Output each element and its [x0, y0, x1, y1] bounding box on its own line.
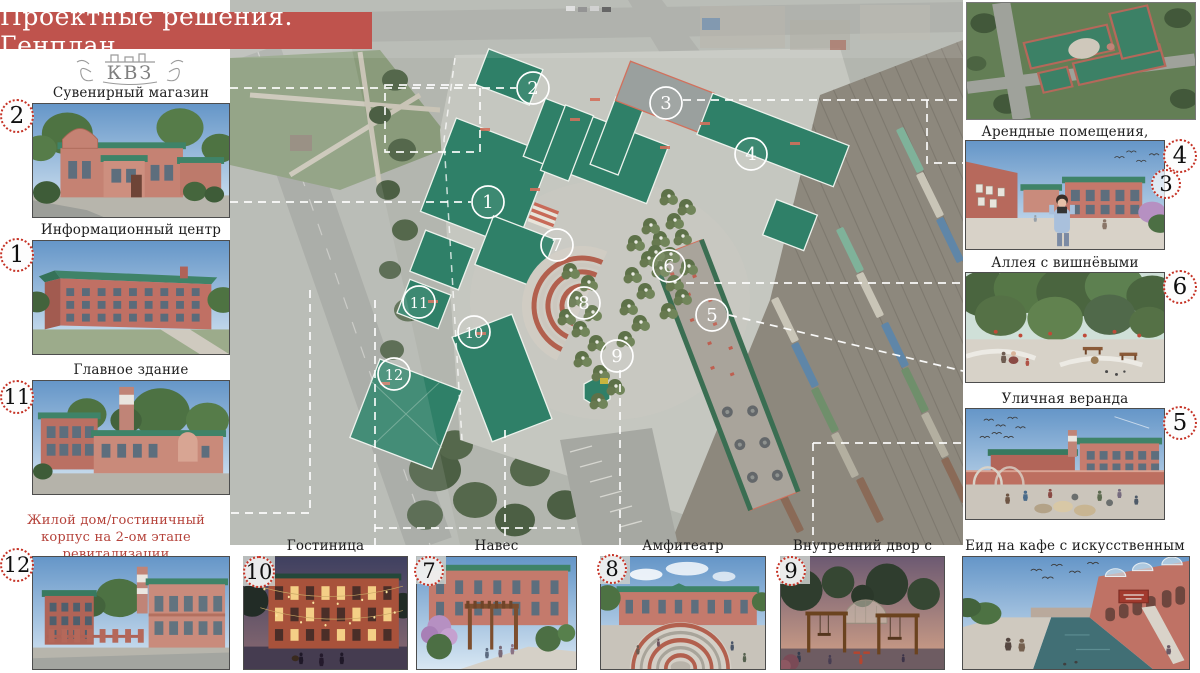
map-marker-6: 6 — [653, 250, 685, 282]
badge-2: 2 — [0, 99, 34, 133]
thumbnail-main-building — [32, 380, 230, 495]
info-center-render — [33, 241, 229, 354]
svg-text:9: 9 — [611, 346, 622, 367]
svg-text:11: 11 — [410, 296, 428, 312]
badge-9: 9 — [776, 556, 806, 586]
kvz-logo-text: КВЗ — [107, 62, 154, 84]
map-marker-12: 12 — [378, 358, 410, 390]
caption-street-veranda: Уличная веранда — [965, 391, 1165, 409]
map-marker-11: 11 — [403, 286, 435, 318]
caption-canopy: Навес — [416, 538, 577, 556]
masterplan-svg: 123456789101112 — [230, 0, 963, 545]
badge-8: 8 — [597, 554, 627, 584]
caption-souvenir-shop: Сувенирный магазин — [32, 85, 230, 103]
svg-text:10: 10 — [465, 326, 483, 342]
caption-hotel: Гостиница — [243, 538, 408, 556]
cafe-pond-render — [963, 557, 1189, 669]
map-marker-2: 2 — [517, 72, 549, 104]
thumbnail-cherry-alley — [965, 272, 1165, 383]
thumbnail-housing — [32, 556, 230, 670]
svg-text:8: 8 — [578, 293, 589, 314]
svg-text:6: 6 — [663, 256, 674, 277]
badge-3: 3 — [1151, 169, 1181, 199]
map-marker-4: 4 — [735, 138, 767, 170]
map-marker-7: 7 — [541, 229, 573, 261]
main-building-render — [33, 381, 229, 494]
badge-4: 4 — [1163, 139, 1197, 173]
badge-1: 1 — [0, 238, 34, 272]
masterplan-aerial-map: 123456789101112 — [230, 0, 963, 545]
page-title: Проектные решения. Генплан — [0, 12, 372, 49]
svg-text:3: 3 — [660, 93, 671, 114]
thumbnail-souvenir-shop — [32, 103, 230, 218]
badge-5: 5 — [1163, 406, 1197, 440]
thumbnail-rental-spaces — [965, 140, 1165, 250]
badge-6: 6 — [1163, 270, 1197, 304]
map-marker-5: 5 — [696, 299, 728, 331]
cherry-alley-render — [966, 273, 1164, 382]
map-marker-8: 8 — [568, 287, 600, 319]
aerial-complex-render — [967, 3, 1195, 119]
map-marker-10: 10 — [458, 316, 490, 348]
badge-12: 12 — [0, 548, 34, 582]
badge-7: 7 — [414, 556, 444, 586]
map-marker-9: 9 — [601, 340, 633, 372]
caption-main-building: Главное здание — [32, 362, 230, 380]
map-marker-3: 3 — [650, 87, 682, 119]
svg-text:2: 2 — [527, 78, 538, 99]
street-veranda-render — [966, 409, 1164, 519]
caption-info-center: Информационный центр — [32, 222, 230, 240]
rental-spaces-render — [966, 141, 1164, 249]
svg-text:7: 7 — [551, 235, 562, 256]
svg-text:5: 5 — [706, 305, 717, 326]
svg-text:12: 12 — [385, 368, 403, 384]
thumbnail-aerial-complex — [966, 2, 1196, 120]
map-marker-1: 1 — [472, 186, 504, 218]
svg-text:4: 4 — [745, 144, 756, 165]
caption-amphitheater: Амфитеатр — [600, 538, 766, 556]
thumbnail-cafe-pond — [962, 556, 1190, 670]
badge-10: 10 — [243, 556, 275, 588]
svg-text:1: 1 — [482, 192, 493, 213]
housing-render — [33, 557, 229, 669]
thumbnail-info-center — [32, 240, 230, 355]
badge-11: 11 — [0, 380, 34, 414]
thumbnail-street-veranda — [965, 408, 1165, 520]
genplan-board: 123456789101112 Проектные решения. Генпл… — [0, 0, 1200, 673]
souvenir-shop-render — [33, 104, 229, 217]
